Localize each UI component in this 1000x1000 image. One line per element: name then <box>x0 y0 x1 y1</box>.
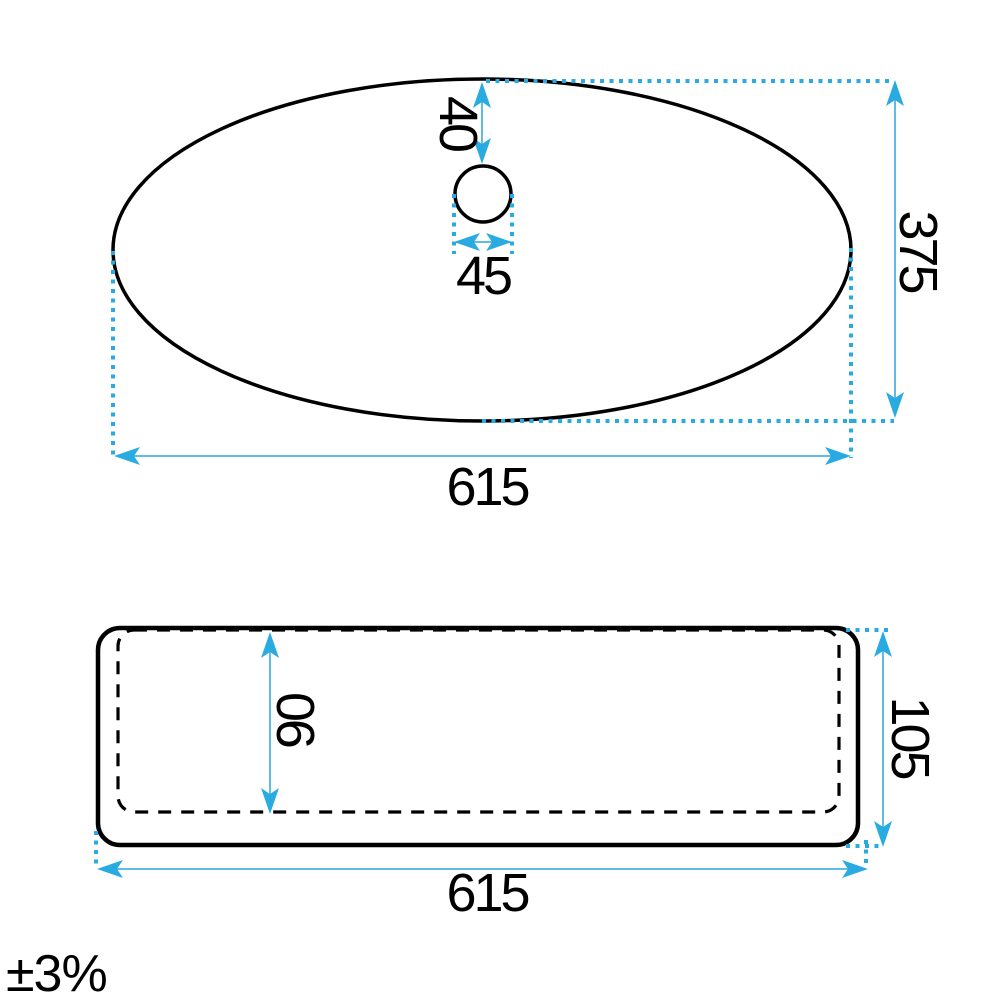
dim-label-hole-diameter: 45 <box>456 246 511 306</box>
dim-label-height: 105 <box>880 696 940 778</box>
dimension-depth: 375 <box>886 80 948 418</box>
dimension-hole-offset: 40 <box>428 82 491 164</box>
tolerance-note: ±3% <box>6 945 107 1000</box>
dimension-hole-diameter: 45 <box>454 233 512 306</box>
dimension-height: 105 <box>874 631 940 847</box>
dim-label-width-side: 615 <box>446 863 528 923</box>
dimension-inner-depth: 90 <box>261 632 326 814</box>
top-view: 40 45 375 615 <box>113 79 948 517</box>
dim-label-depth: 375 <box>888 210 948 292</box>
side-view: 90 105 615 <box>96 628 940 923</box>
dimension-width-top: 615 <box>114 447 851 517</box>
dim-label-inner-depth: 90 <box>266 694 326 749</box>
drain-hole <box>455 166 511 222</box>
dim-label-width-top: 615 <box>446 457 528 517</box>
drawing-canvas: 40 45 375 615 <box>0 0 1000 1000</box>
technical-drawing: 40 45 375 615 <box>0 0 1000 1000</box>
inner-cavity-dashed <box>118 630 839 812</box>
dim-label-hole-offset: 40 <box>428 96 488 151</box>
dimension-width-side: 615 <box>97 860 868 923</box>
